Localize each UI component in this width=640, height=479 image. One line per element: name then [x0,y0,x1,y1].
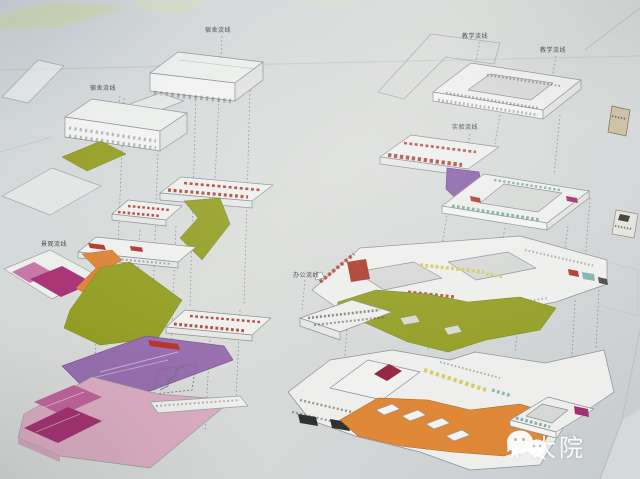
dorm-plate-lower [166,310,271,341]
label-dorm-circulation-mid: 宿舍流线 [90,85,116,92]
exploded-axonometric-diagram [0,0,640,479]
label-landscape-circulation: 景观流线 [41,241,67,248]
paper-crease [0,56,640,70]
ground-outline-plane [2,168,101,215]
dorm-slab-2 [65,93,187,151]
wechat-icon [505,428,549,462]
poster-fold-line [585,8,640,50]
lab-level [380,135,589,230]
label-dorm-circulation-top: 宿舍流线 [205,27,231,34]
adjacent-panel-fragments-top [0,0,365,30]
right-stack [288,34,614,470]
label-office-circulation: 办公流线 [293,272,319,279]
label-lab-circulation: 实验流线 [452,124,478,131]
label-teaching-circulation-right: 教学流线 [540,47,566,54]
dorm-roof-slab [150,52,263,101]
ground-courts [18,377,248,468]
label-teaching-circulation-left: 教学流线 [462,33,488,40]
roof-outline-small [2,60,64,103]
left-edge-line [0,137,52,152]
green-terrace-patch [62,141,126,171]
watermark: 中大院 [505,428,586,463]
office-level [300,236,608,352]
teaching-ring-level [433,63,581,119]
poster-photo: 宿舍流线 宿舍流线 教学流线 教学流线 实验流线 办公流线 景观流线 中大院 [0,0,640,479]
architecture-poster: 宿舍流线 宿舍流线 教学流线 教学流线 实验流线 办公流线 景观流线 [0,0,640,479]
board-edge [600,330,640,479]
left-stack [2,36,273,468]
